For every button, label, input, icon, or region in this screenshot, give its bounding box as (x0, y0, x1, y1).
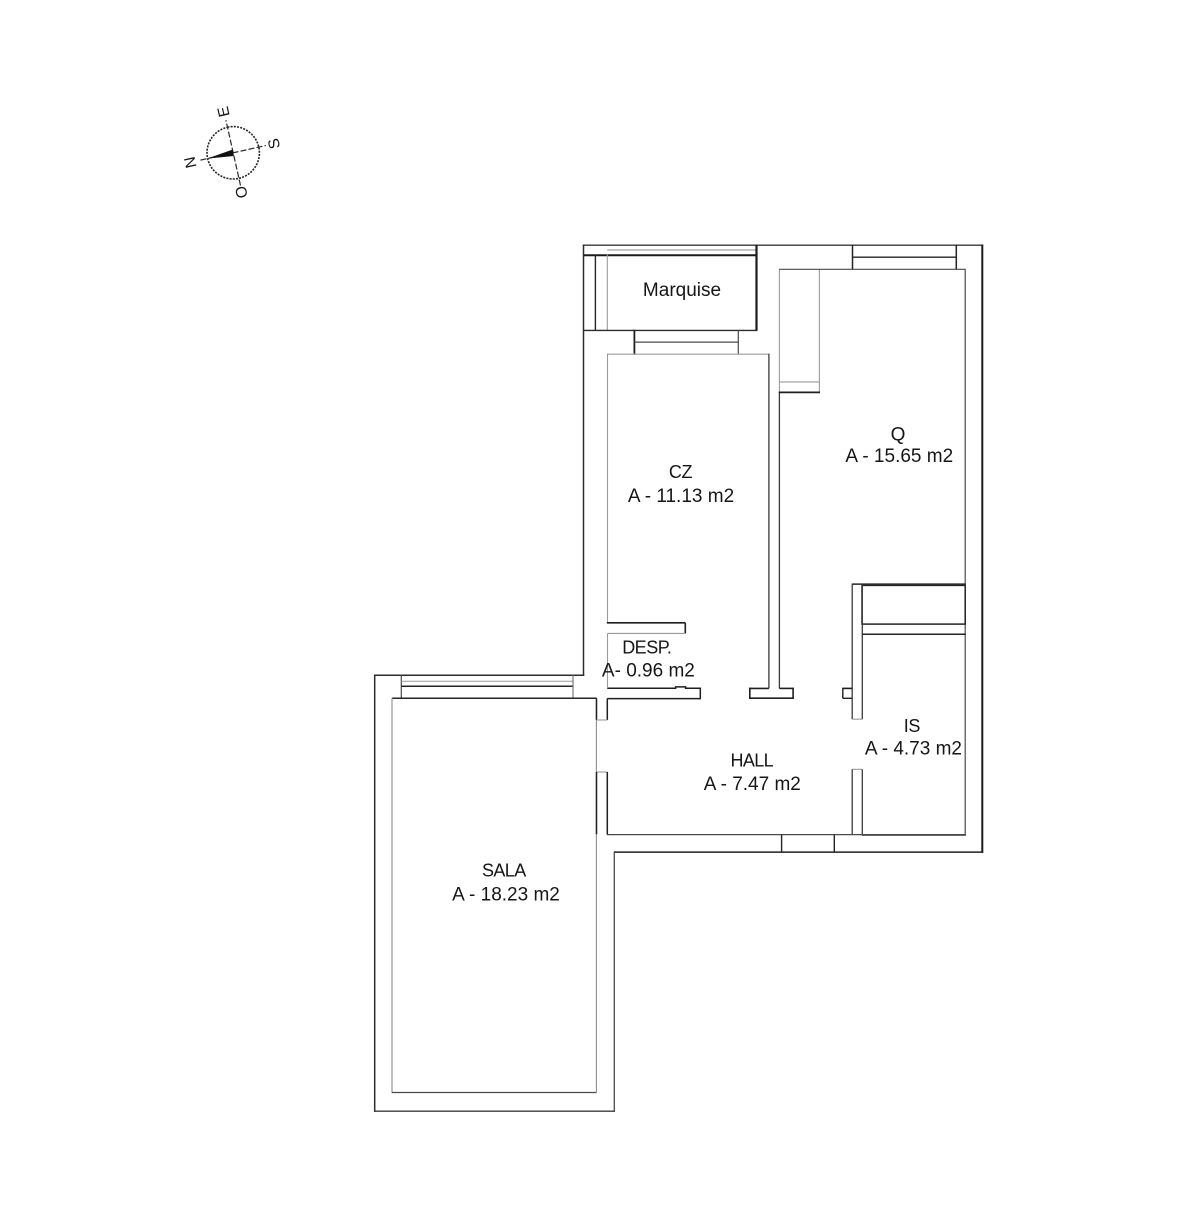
svg-text:SALA: SALA (482, 861, 526, 881)
svg-text:HALL: HALL (730, 751, 773, 771)
svg-text:IS: IS (904, 716, 921, 736)
svg-text:A - 15.65 m2: A - 15.65 m2 (845, 446, 953, 467)
svg-text:DESP.: DESP. (622, 638, 671, 658)
svg-text:A - 11.13 m2: A - 11.13 m2 (628, 486, 734, 507)
svg-text:A - 7.47 m2: A - 7.47 m2 (704, 774, 801, 795)
svg-text:A- 0.96 m2: A- 0.96 m2 (602, 661, 695, 682)
svg-text:Q: Q (891, 425, 906, 446)
svg-text:A - 18.23 m2: A - 18.23 m2 (452, 884, 560, 905)
svg-text:A - 4.73 m2: A - 4.73 m2 (865, 739, 962, 760)
svg-text:CZ: CZ (669, 462, 693, 482)
svg-text:Marquise: Marquise (643, 280, 721, 301)
